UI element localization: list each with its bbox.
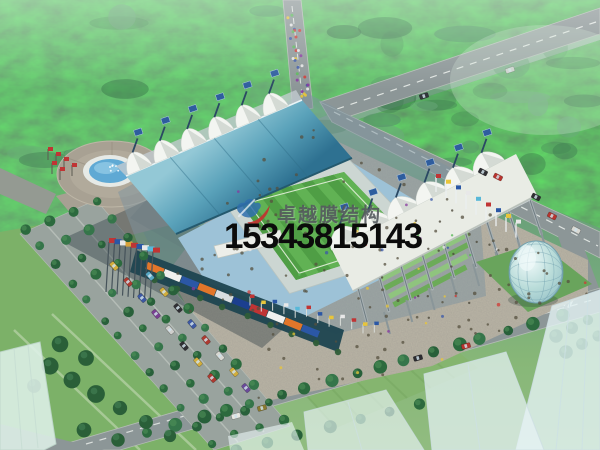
- person: [396, 257, 399, 260]
- tree-highlight: [527, 318, 534, 325]
- person: [457, 325, 460, 328]
- tree-highlight: [200, 395, 205, 400]
- tree-highlight: [375, 361, 382, 368]
- person: [381, 248, 384, 251]
- tree-clump: [410, 101, 438, 111]
- person: [438, 250, 440, 252]
- flag: [295, 307, 300, 311]
- flag: [329, 316, 334, 320]
- person: [414, 296, 416, 298]
- person: [387, 330, 390, 333]
- person: [395, 217, 397, 219]
- person: [200, 267, 203, 270]
- person: [427, 248, 429, 250]
- person: [356, 371, 359, 374]
- person: [367, 334, 370, 337]
- person: [213, 254, 216, 257]
- tree-highlight: [124, 308, 129, 313]
- person: [584, 281, 587, 284]
- tree-highlight: [163, 316, 167, 320]
- tree-highlight: [327, 375, 334, 382]
- flag: [284, 303, 289, 307]
- tree-highlight: [146, 369, 150, 373]
- tree-highlight: [415, 400, 421, 406]
- person: [312, 136, 315, 139]
- person: [416, 316, 419, 319]
- tree-highlight: [454, 339, 461, 346]
- person: [285, 274, 287, 276]
- tree-highlight: [115, 402, 122, 409]
- tree-highlight: [124, 234, 129, 239]
- red-flag: [48, 147, 53, 151]
- person: [192, 287, 195, 290]
- person: [323, 269, 326, 272]
- tree-highlight: [429, 347, 435, 353]
- tree-highlight: [67, 374, 74, 381]
- scene-graphics: [0, 0, 600, 450]
- tree-highlight: [199, 411, 206, 418]
- person: [366, 287, 369, 290]
- shrub: [335, 349, 341, 355]
- tree-highlight: [52, 260, 57, 265]
- tree-highlight: [221, 405, 227, 411]
- stadium-aerial-rendering: 卓越膜结构 15343815143: [0, 0, 600, 450]
- person: [410, 244, 412, 246]
- person: [355, 345, 358, 348]
- person: [364, 243, 367, 246]
- person: [369, 306, 372, 309]
- person: [487, 323, 489, 325]
- person: [298, 273, 301, 276]
- person: [257, 307, 260, 310]
- tree-highlight: [55, 338, 62, 345]
- person: [378, 168, 381, 171]
- person: [342, 180, 345, 183]
- person: [401, 341, 404, 344]
- person: [439, 220, 441, 222]
- person: [383, 263, 386, 266]
- person: [402, 183, 405, 186]
- sparkle: [110, 170, 112, 172]
- person: [229, 293, 232, 296]
- tree-highlight: [21, 225, 26, 230]
- person: [240, 251, 243, 254]
- person: [451, 209, 453, 211]
- person: [262, 158, 266, 162]
- tree-highlight: [266, 399, 270, 403]
- person: [351, 245, 354, 248]
- person: [425, 322, 427, 324]
- person: [452, 253, 454, 255]
- tree-highlight: [278, 391, 283, 396]
- person: [538, 301, 541, 304]
- flag: [506, 214, 511, 218]
- tree-highlight: [165, 430, 172, 437]
- sparkle: [111, 165, 113, 167]
- tree-highlight: [108, 215, 113, 220]
- flag: [153, 248, 160, 253]
- pool-highlight: [94, 162, 118, 174]
- person: [415, 219, 418, 222]
- tree-highlight: [399, 356, 405, 362]
- person: [469, 254, 471, 256]
- tree-highlight: [169, 286, 174, 291]
- person: [268, 188, 271, 191]
- shrub: [267, 322, 273, 328]
- tree-highlight: [232, 360, 238, 366]
- tree-clump: [461, 141, 479, 154]
- person: [274, 213, 277, 216]
- tree-highlight: [225, 388, 229, 392]
- person: [417, 295, 419, 297]
- person: [282, 357, 285, 360]
- person: [376, 356, 379, 359]
- person: [386, 305, 389, 308]
- tree-highlight: [280, 416, 285, 421]
- person: [226, 202, 229, 205]
- person: [476, 241, 478, 243]
- person: [498, 330, 500, 332]
- tree-highlight: [299, 384, 305, 390]
- person: [450, 265, 452, 267]
- person: [272, 333, 275, 336]
- person: [266, 220, 269, 223]
- person: [467, 319, 470, 322]
- tree-highlight: [140, 325, 144, 329]
- person: [419, 237, 421, 239]
- person: [447, 247, 449, 249]
- person: [271, 223, 274, 226]
- person: [292, 332, 295, 335]
- person: [381, 276, 383, 278]
- person: [446, 198, 449, 201]
- person: [267, 348, 270, 351]
- person: [497, 249, 499, 251]
- flag: [307, 306, 312, 310]
- shrub: [219, 304, 225, 310]
- flag: [476, 197, 481, 201]
- person: [567, 280, 570, 283]
- person: [300, 95, 303, 98]
- person: [381, 288, 384, 291]
- person: [304, 232, 308, 236]
- tree-highlight: [256, 424, 260, 428]
- tree-highlight: [184, 304, 189, 309]
- person: [505, 248, 509, 252]
- person: [300, 209, 303, 212]
- tree-highlight: [187, 380, 191, 384]
- person: [396, 299, 399, 302]
- tree-highlight: [177, 405, 181, 409]
- flag: [456, 185, 461, 189]
- red-flag: [56, 152, 61, 156]
- red-flag: [64, 157, 69, 161]
- person: [427, 295, 429, 297]
- tree-highlight: [91, 270, 97, 276]
- sparkle: [117, 170, 119, 172]
- tree-highlight: [155, 343, 160, 348]
- tree-highlight: [109, 290, 113, 294]
- person: [300, 135, 304, 139]
- person: [176, 272, 179, 275]
- person: [455, 295, 457, 297]
- shrub: [245, 313, 251, 319]
- shrub: [313, 340, 319, 346]
- person: [417, 268, 419, 270]
- person: [276, 187, 279, 190]
- person: [489, 274, 492, 277]
- tree-highlight: [69, 280, 73, 284]
- tree-highlight: [505, 327, 510, 332]
- tree-highlight: [79, 424, 86, 431]
- tree-highlight: [91, 388, 98, 395]
- person: [200, 258, 203, 261]
- tree-highlight: [45, 217, 51, 223]
- flag: [436, 174, 441, 178]
- tree: [87, 385, 105, 403]
- person: [473, 292, 477, 296]
- tree-highlight: [132, 281, 137, 286]
- person: [335, 340, 337, 342]
- person: [385, 226, 388, 229]
- person: [305, 290, 308, 293]
- person: [257, 179, 260, 182]
- flag: [496, 208, 501, 212]
- person: [381, 373, 384, 376]
- person: [318, 378, 321, 381]
- tree-highlight: [231, 431, 235, 435]
- person: [461, 215, 464, 218]
- person: [304, 94, 307, 97]
- tree-highlight: [250, 381, 255, 386]
- person: [474, 332, 477, 335]
- person: [488, 244, 490, 246]
- person: [442, 246, 445, 249]
- person: [250, 267, 253, 270]
- person: [468, 302, 470, 304]
- person: [507, 283, 510, 286]
- person: [258, 225, 261, 228]
- flag: [446, 180, 451, 184]
- person: [498, 288, 501, 291]
- person: [237, 190, 240, 193]
- person: [233, 247, 236, 250]
- red-flag: [52, 161, 57, 165]
- tree-highlight: [193, 423, 198, 428]
- dome-highlight: [518, 245, 536, 271]
- tree-highlight: [85, 225, 91, 231]
- tree-highlight: [179, 335, 183, 339]
- person: [546, 272, 549, 275]
- flag: [363, 322, 368, 326]
- person: [451, 234, 453, 236]
- person: [325, 251, 328, 254]
- flag: [374, 322, 379, 326]
- person: [527, 292, 530, 295]
- person: [417, 234, 419, 236]
- tree-highlight: [45, 360, 52, 367]
- tree-clump: [553, 143, 578, 159]
- person: [434, 230, 437, 233]
- tree-highlight: [148, 298, 152, 302]
- person: [279, 366, 282, 369]
- tree-highlight: [62, 236, 67, 241]
- person: [251, 309, 254, 312]
- tree-highlight: [70, 208, 75, 213]
- person: [527, 296, 530, 299]
- person: [314, 323, 317, 326]
- tree-highlight: [81, 352, 88, 359]
- person: [379, 332, 381, 334]
- person: [441, 315, 444, 318]
- flag: [352, 318, 357, 322]
- tree-highlight: [140, 252, 145, 257]
- person: [316, 368, 319, 371]
- person: [405, 204, 408, 207]
- person: [468, 233, 471, 236]
- tree-highlight: [143, 429, 148, 434]
- person: [407, 318, 410, 321]
- tree-highlight: [160, 385, 164, 389]
- person: [247, 290, 250, 293]
- person: [514, 257, 517, 260]
- flag: [340, 315, 345, 319]
- flag: [261, 301, 266, 305]
- tree-highlight: [94, 198, 98, 202]
- tree-highlight: [202, 324, 206, 328]
- tree-highlight: [141, 416, 148, 423]
- person: [338, 210, 341, 213]
- person: [537, 252, 539, 254]
- person: [356, 230, 359, 233]
- tree-highlight: [115, 332, 119, 336]
- person: [280, 213, 283, 216]
- tree-highlight: [79, 255, 83, 259]
- person: [235, 247, 238, 250]
- flag: [273, 300, 278, 304]
- person: [430, 198, 433, 201]
- person: [444, 295, 446, 297]
- red-flag: [72, 163, 77, 167]
- tree-highlight: [113, 434, 120, 441]
- person: [441, 358, 444, 361]
- person: [558, 282, 561, 285]
- person: [301, 90, 304, 93]
- person: [189, 310, 192, 313]
- flag: [318, 312, 323, 316]
- person: [227, 273, 230, 276]
- person: [497, 303, 501, 307]
- person: [248, 248, 252, 252]
- person: [428, 317, 430, 319]
- shrub: [197, 295, 203, 301]
- person: [341, 377, 344, 380]
- tree-highlight: [209, 441, 213, 445]
- person: [270, 235, 273, 238]
- tree-highlight: [241, 407, 246, 412]
- tree-highlight: [220, 345, 224, 349]
- person: [489, 213, 492, 216]
- tree-highlight: [194, 352, 198, 356]
- person: [222, 298, 224, 300]
- person: [385, 315, 388, 318]
- person: [492, 239, 495, 242]
- tree-highlight: [132, 352, 136, 356]
- tree-highlight: [102, 318, 106, 322]
- tree-highlight: [83, 296, 87, 300]
- tree-highlight: [216, 414, 220, 418]
- tree-highlight: [170, 419, 177, 426]
- person: [270, 200, 273, 203]
- person: [413, 222, 416, 225]
- person: [470, 328, 473, 331]
- person: [383, 348, 387, 352]
- tree-highlight: [99, 241, 103, 245]
- person: [441, 301, 443, 303]
- tree-highlight: [36, 242, 40, 246]
- person: [345, 274, 348, 277]
- flag: [466, 191, 471, 195]
- flag: [516, 220, 521, 224]
- sparkle: [109, 166, 111, 168]
- tree: [64, 372, 81, 389]
- person: [276, 322, 279, 325]
- person: [543, 269, 546, 272]
- person: [515, 301, 518, 304]
- tree-highlight: [157, 272, 161, 276]
- person: [257, 397, 259, 399]
- person: [514, 316, 517, 319]
- tree-highlight: [171, 361, 176, 366]
- tree: [52, 336, 69, 353]
- person: [295, 173, 298, 176]
- person: [455, 292, 458, 295]
- flag: [486, 203, 491, 207]
- flag: [250, 294, 255, 298]
- person: [357, 297, 360, 300]
- person: [314, 263, 317, 266]
- person: [259, 194, 262, 197]
- person: [312, 129, 314, 131]
- person: [247, 229, 250, 232]
- red-flag: [60, 167, 65, 171]
- tree-highlight: [246, 400, 251, 405]
- person: [360, 162, 363, 165]
